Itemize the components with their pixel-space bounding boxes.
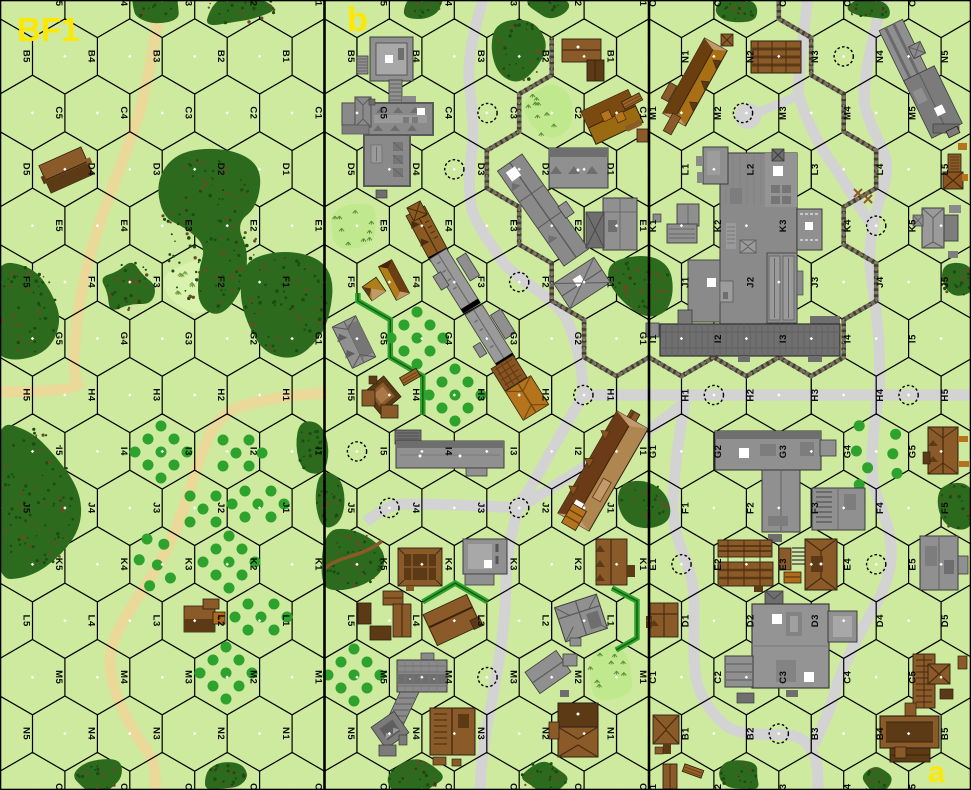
svg-text:I2: I2 [572, 447, 583, 456]
svg-text:E3: E3 [778, 558, 789, 571]
svg-text:E1: E1 [637, 219, 648, 232]
svg-text:E5: E5 [377, 219, 388, 232]
svg-text:B3: B3 [475, 50, 486, 63]
svg-text:N1: N1 [605, 727, 616, 740]
svg-text:L3: L3 [475, 615, 486, 627]
svg-text:M3: M3 [507, 670, 518, 684]
svg-text:K4: K4 [843, 219, 854, 232]
svg-text:K3: K3 [183, 558, 194, 571]
svg-text:F3: F3 [475, 276, 486, 288]
svg-text:D4: D4 [85, 163, 96, 176]
svg-text:G4: G4 [843, 444, 854, 458]
svg-text:N5: N5 [345, 727, 356, 740]
svg-text:J1: J1 [605, 502, 616, 514]
svg-text:M1: M1 [313, 670, 324, 684]
svg-text:G3: G3 [507, 332, 518, 346]
svg-text:H1: H1 [680, 388, 691, 401]
svg-text:L1: L1 [680, 163, 691, 175]
svg-text:K1: K1 [637, 558, 648, 571]
svg-text:E1: E1 [313, 219, 324, 232]
svg-text:N4: N4 [85, 727, 96, 740]
svg-text:I5: I5 [377, 447, 388, 456]
svg-text:C5: C5 [377, 106, 388, 119]
svg-text:I5: I5 [53, 447, 64, 456]
svg-text:E3: E3 [507, 219, 518, 232]
svg-text:K3: K3 [507, 558, 518, 571]
svg-text:I2: I2 [713, 334, 724, 343]
svg-text:M3: M3 [778, 106, 789, 120]
svg-text:B2: B2 [215, 50, 226, 63]
svg-text:M4: M4 [843, 106, 854, 120]
svg-text:F2: F2 [215, 276, 226, 288]
svg-text:F1: F1 [280, 276, 291, 288]
svg-text:D4: D4 [875, 614, 886, 627]
svg-text:I3: I3 [778, 334, 789, 343]
svg-text:F4: F4 [85, 276, 96, 288]
svg-text:C1: C1 [313, 106, 324, 119]
svg-text:F4: F4 [875, 502, 886, 514]
svg-text:G3: G3 [778, 445, 789, 459]
svg-text:C4: C4 [118, 106, 129, 119]
svg-text:G3: G3 [183, 332, 194, 346]
svg-text:G4: G4 [442, 332, 453, 346]
svg-text:K2: K2 [713, 219, 724, 232]
svg-text:D3: D3 [810, 614, 821, 627]
svg-text:K2: K2 [248, 558, 259, 571]
svg-text:J2: J2 [745, 276, 756, 288]
svg-text:L5: L5 [940, 163, 951, 175]
svg-text:M5: M5 [377, 670, 388, 684]
svg-text:L3: L3 [150, 615, 161, 627]
svg-text:J4: J4 [875, 276, 886, 288]
svg-text:N5: N5 [21, 727, 32, 740]
svg-text:N3: N3 [810, 50, 821, 63]
svg-text:N3: N3 [475, 727, 486, 740]
svg-text:G5: G5 [908, 444, 919, 458]
svg-text:D4: D4 [410, 163, 421, 176]
svg-text:M5: M5 [908, 106, 919, 120]
svg-text:L1: L1 [280, 615, 291, 627]
svg-text:B5: B5 [345, 50, 356, 63]
svg-text:J1: J1 [680, 276, 691, 288]
svg-text:K3: K3 [778, 219, 789, 232]
svg-text:J3: J3 [475, 502, 486, 514]
svg-text:I1: I1 [637, 447, 648, 456]
svg-text:B4: B4 [85, 50, 96, 63]
svg-text:I4: I4 [843, 334, 854, 343]
svg-text:I3: I3 [183, 447, 194, 456]
svg-text:G5: G5 [377, 332, 388, 346]
svg-text:N1: N1 [280, 727, 291, 740]
svg-text:G2: G2 [572, 332, 583, 346]
svg-text:N2: N2 [745, 50, 756, 63]
svg-text:K5: K5 [377, 558, 388, 571]
svg-text:F2: F2 [540, 276, 551, 288]
svg-text:M3: M3 [183, 670, 194, 684]
svg-text:C2: C2 [713, 671, 724, 684]
svg-text:H5: H5 [940, 388, 951, 401]
svg-text:F4: F4 [410, 276, 421, 288]
svg-text:E2: E2 [713, 558, 724, 571]
svg-text:M4: M4 [442, 670, 453, 684]
svg-text:K4: K4 [118, 558, 129, 571]
svg-text:K1: K1 [313, 558, 324, 571]
svg-text:F1: F1 [605, 276, 616, 288]
svg-text:C2: C2 [248, 106, 259, 119]
svg-text:K4: K4 [442, 558, 453, 571]
svg-text:L4: L4 [85, 615, 96, 627]
svg-text:I3: I3 [507, 447, 518, 456]
svg-text:L3: L3 [810, 163, 821, 175]
svg-text:H1: H1 [605, 388, 616, 401]
svg-text:B5: B5 [21, 50, 32, 63]
svg-text:D5: D5 [345, 163, 356, 176]
svg-text:F3: F3 [150, 276, 161, 288]
svg-text:I1: I1 [313, 447, 324, 456]
svg-text:F5: F5 [940, 502, 951, 514]
svg-text:J3: J3 [810, 276, 821, 288]
svg-text:G4: G4 [118, 332, 129, 346]
svg-text:K2: K2 [572, 558, 583, 571]
svg-text:J1: J1 [280, 502, 291, 514]
svg-text:C4: C4 [442, 106, 453, 119]
svg-text:M5: M5 [53, 670, 64, 684]
svg-text:N5: N5 [940, 50, 951, 63]
svg-text:D1: D1 [680, 614, 691, 627]
svg-text:B5: B5 [940, 727, 951, 740]
svg-text:E4: E4 [843, 558, 854, 571]
svg-text:H5: H5 [21, 388, 32, 401]
svg-text:G5: G5 [53, 332, 64, 346]
svg-text:L4: L4 [875, 163, 886, 175]
svg-text:J2: J2 [540, 502, 551, 514]
svg-text:B4: B4 [875, 727, 886, 740]
svg-text:L2: L2 [745, 163, 756, 175]
svg-text:B2: B2 [540, 50, 551, 63]
svg-text:K5: K5 [908, 219, 919, 232]
svg-text:C1: C1 [637, 106, 648, 119]
svg-text:C3: C3 [778, 671, 789, 684]
svg-text:M2: M2 [248, 670, 259, 684]
svg-text:H1: H1 [280, 388, 291, 401]
svg-text:F3: F3 [810, 502, 821, 514]
svg-text:N2: N2 [540, 727, 551, 740]
svg-text:L4: L4 [410, 615, 421, 627]
svg-text:H2: H2 [215, 388, 226, 401]
svg-text:G2: G2 [713, 445, 724, 459]
svg-text:F2: F2 [745, 502, 756, 514]
svg-text:N2: N2 [215, 727, 226, 740]
svg-text:B1: B1 [605, 50, 616, 63]
svg-text:N4: N4 [875, 50, 886, 63]
svg-text:J5: J5 [21, 502, 32, 514]
svg-text:G1: G1 [313, 332, 324, 346]
svg-text:I4: I4 [442, 447, 453, 456]
svg-text:N3: N3 [150, 727, 161, 740]
svg-text:J2: J2 [215, 502, 226, 514]
svg-text:J3: J3 [150, 502, 161, 514]
svg-text:J4: J4 [410, 502, 421, 514]
svg-text:H4: H4 [410, 388, 421, 401]
svg-text:a: a [928, 756, 945, 789]
svg-text:b: b [347, 1, 368, 39]
svg-text:H5: H5 [345, 388, 356, 401]
svg-text:C5: C5 [908, 670, 919, 683]
svg-text:L1: L1 [605, 615, 616, 627]
svg-text:C3: C3 [183, 106, 194, 119]
svg-text:C3: C3 [507, 106, 518, 119]
svg-text:E2: E2 [248, 219, 259, 232]
svg-text:C2: C2 [572, 106, 583, 119]
svg-text:K5: K5 [53, 558, 64, 571]
svg-text:J5: J5 [345, 502, 356, 514]
svg-text:M1: M1 [637, 670, 648, 684]
svg-text:M2: M2 [572, 670, 583, 684]
svg-text:B2: B2 [745, 727, 756, 740]
svg-text:D3: D3 [150, 163, 161, 176]
svg-text:F1: F1 [680, 502, 691, 514]
svg-text:E5: E5 [908, 558, 919, 571]
svg-text:I4: I4 [118, 447, 129, 456]
svg-text:D2: D2 [540, 163, 551, 176]
svg-text:L2: L2 [540, 615, 551, 627]
svg-text:I2: I2 [248, 447, 259, 456]
svg-text:H4: H4 [875, 388, 886, 401]
svg-text:C5: C5 [53, 106, 64, 119]
svg-text:G2: G2 [248, 332, 259, 346]
svg-text:I5: I5 [908, 334, 919, 343]
svg-text:B3: B3 [150, 50, 161, 63]
svg-text:C4: C4 [843, 670, 854, 683]
svg-text:D2: D2 [215, 163, 226, 176]
svg-text:J5: J5 [940, 276, 951, 288]
svg-text:D3: D3 [475, 163, 486, 176]
svg-text:D1: D1 [605, 163, 616, 176]
svg-text:D1: D1 [280, 163, 291, 176]
svg-text:E3: E3 [183, 219, 194, 232]
svg-text:J4: J4 [85, 502, 96, 514]
svg-text:B4: B4 [410, 50, 421, 63]
svg-text:M4: M4 [118, 670, 129, 684]
svg-text:H3: H3 [150, 388, 161, 401]
svg-text:G1: G1 [637, 332, 648, 346]
svg-text:D5: D5 [21, 163, 32, 176]
svg-text:L5: L5 [345, 615, 356, 627]
svg-text:H2: H2 [540, 388, 551, 401]
svg-text:E5: E5 [53, 219, 64, 232]
svg-text:E2: E2 [572, 219, 583, 232]
svg-text:N1: N1 [680, 50, 691, 63]
svg-text:BF1: BF1 [17, 11, 79, 48]
svg-text:N4: N4 [410, 727, 421, 740]
svg-text:H2: H2 [745, 388, 756, 401]
svg-text:F5: F5 [21, 276, 32, 288]
svg-text:D2: D2 [745, 614, 756, 627]
svg-text:D5: D5 [940, 614, 951, 627]
svg-text:M2: M2 [713, 106, 724, 120]
svg-text:B1: B1 [280, 50, 291, 63]
svg-text:H3: H3 [810, 388, 821, 401]
svg-text:B3: B3 [810, 727, 821, 740]
svg-text:H3: H3 [475, 388, 486, 401]
svg-text:H4: H4 [85, 388, 96, 401]
svg-text:B1: B1 [680, 727, 691, 740]
svg-text:E4: E4 [118, 219, 129, 232]
svg-text:L2: L2 [215, 615, 226, 627]
svg-text:L5: L5 [21, 615, 32, 627]
svg-text:F5: F5 [345, 276, 356, 288]
svg-text:E4: E4 [442, 219, 453, 232]
